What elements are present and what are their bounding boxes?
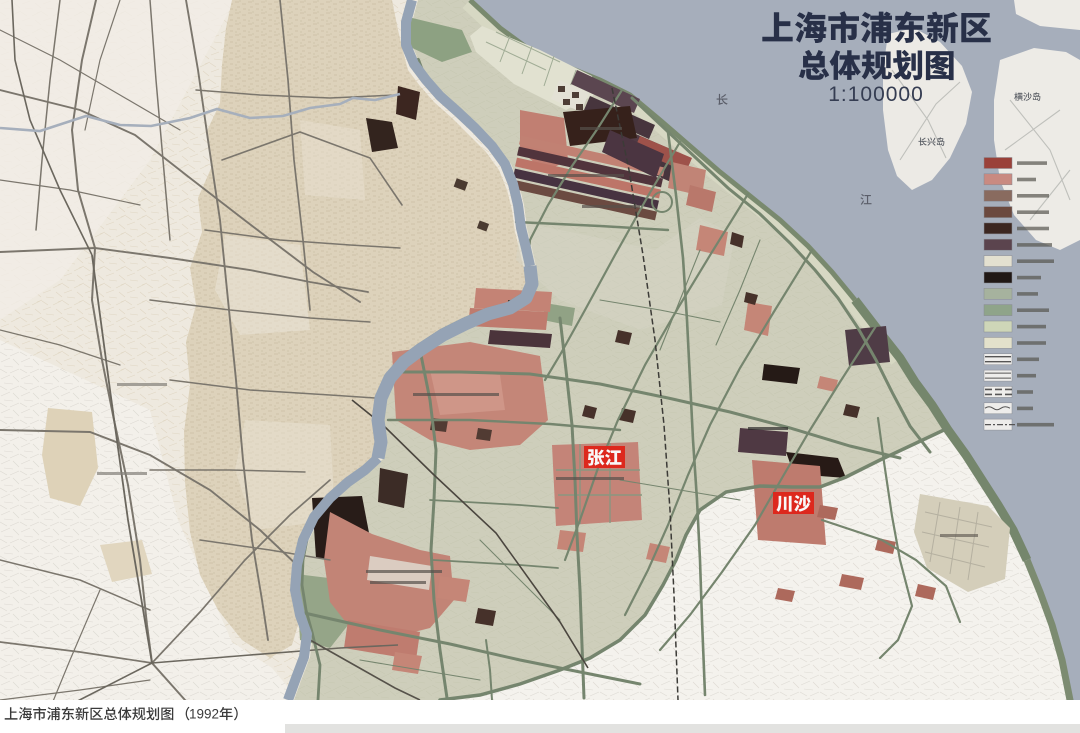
svg-text:1992: 1992 (189, 707, 219, 722)
